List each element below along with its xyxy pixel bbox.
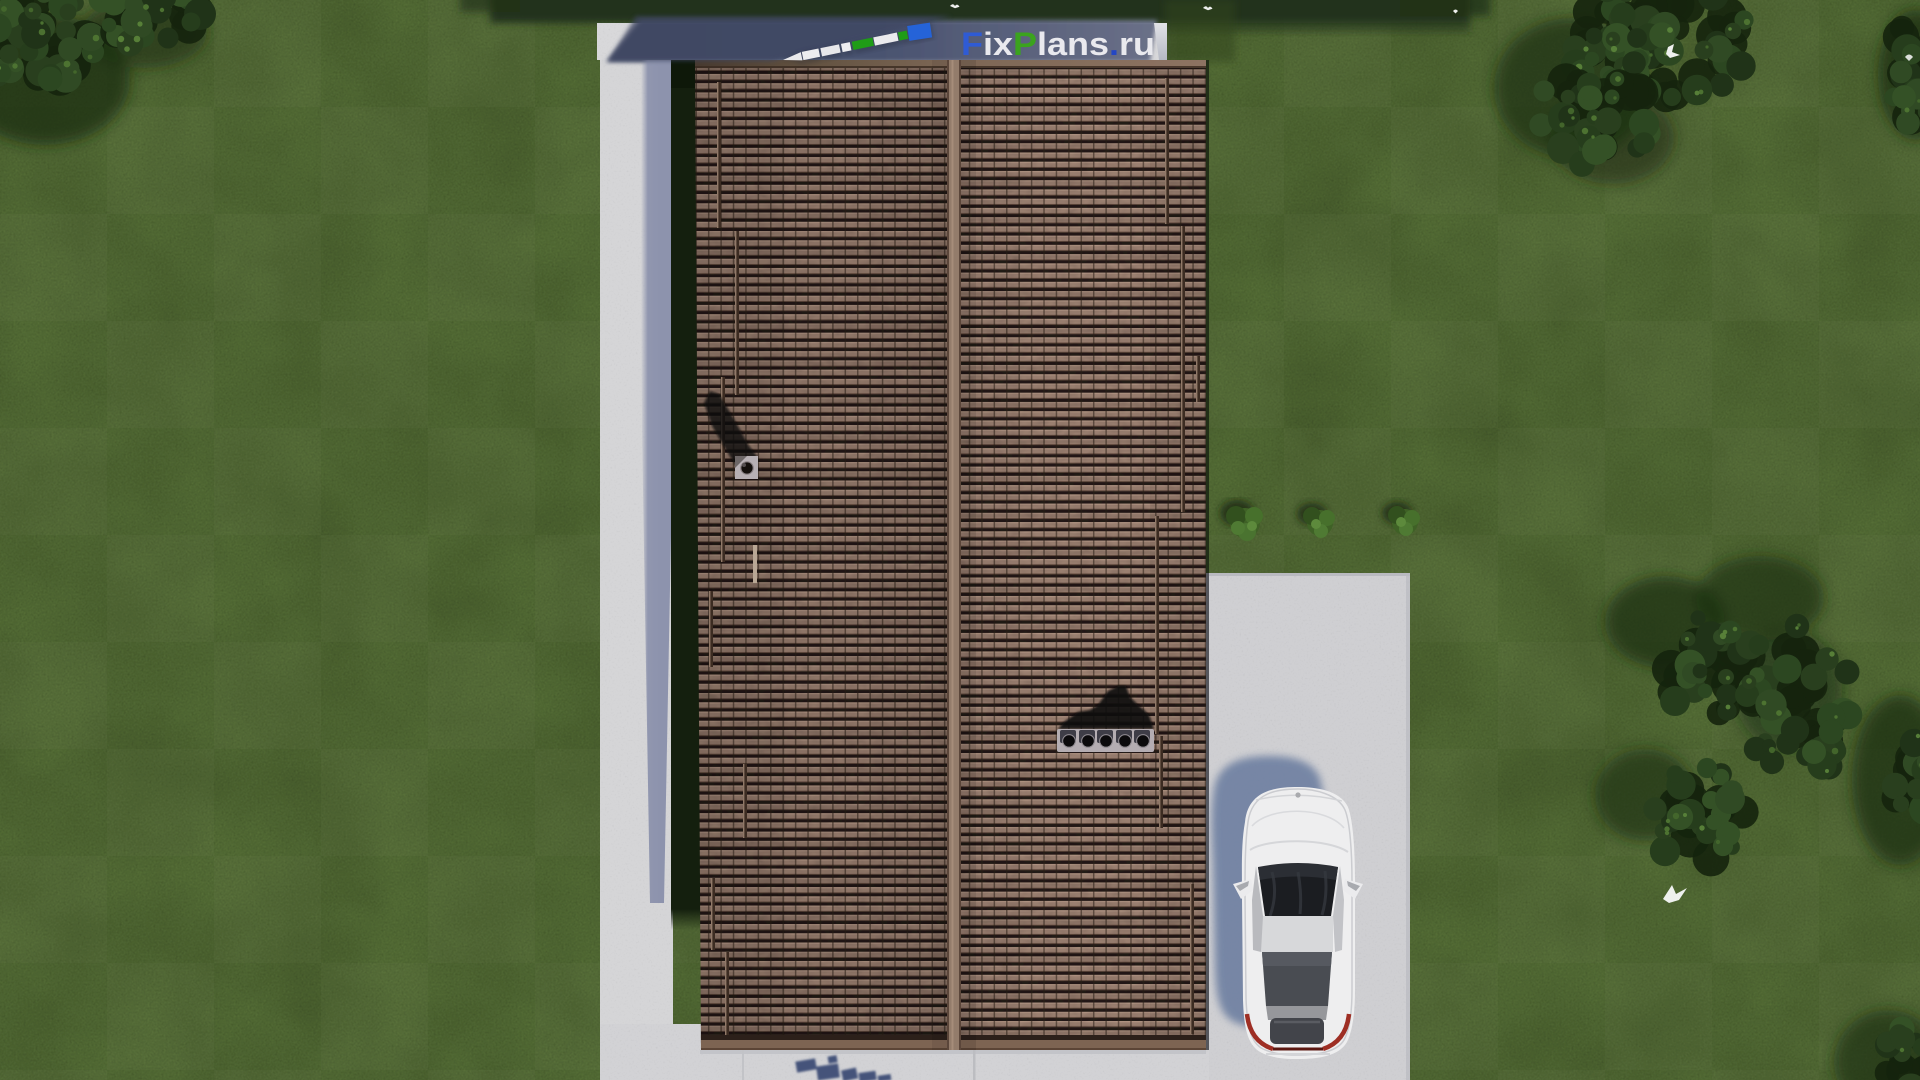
- svg-text:FixPlans.ru: FixPlans.ru: [961, 26, 1155, 62]
